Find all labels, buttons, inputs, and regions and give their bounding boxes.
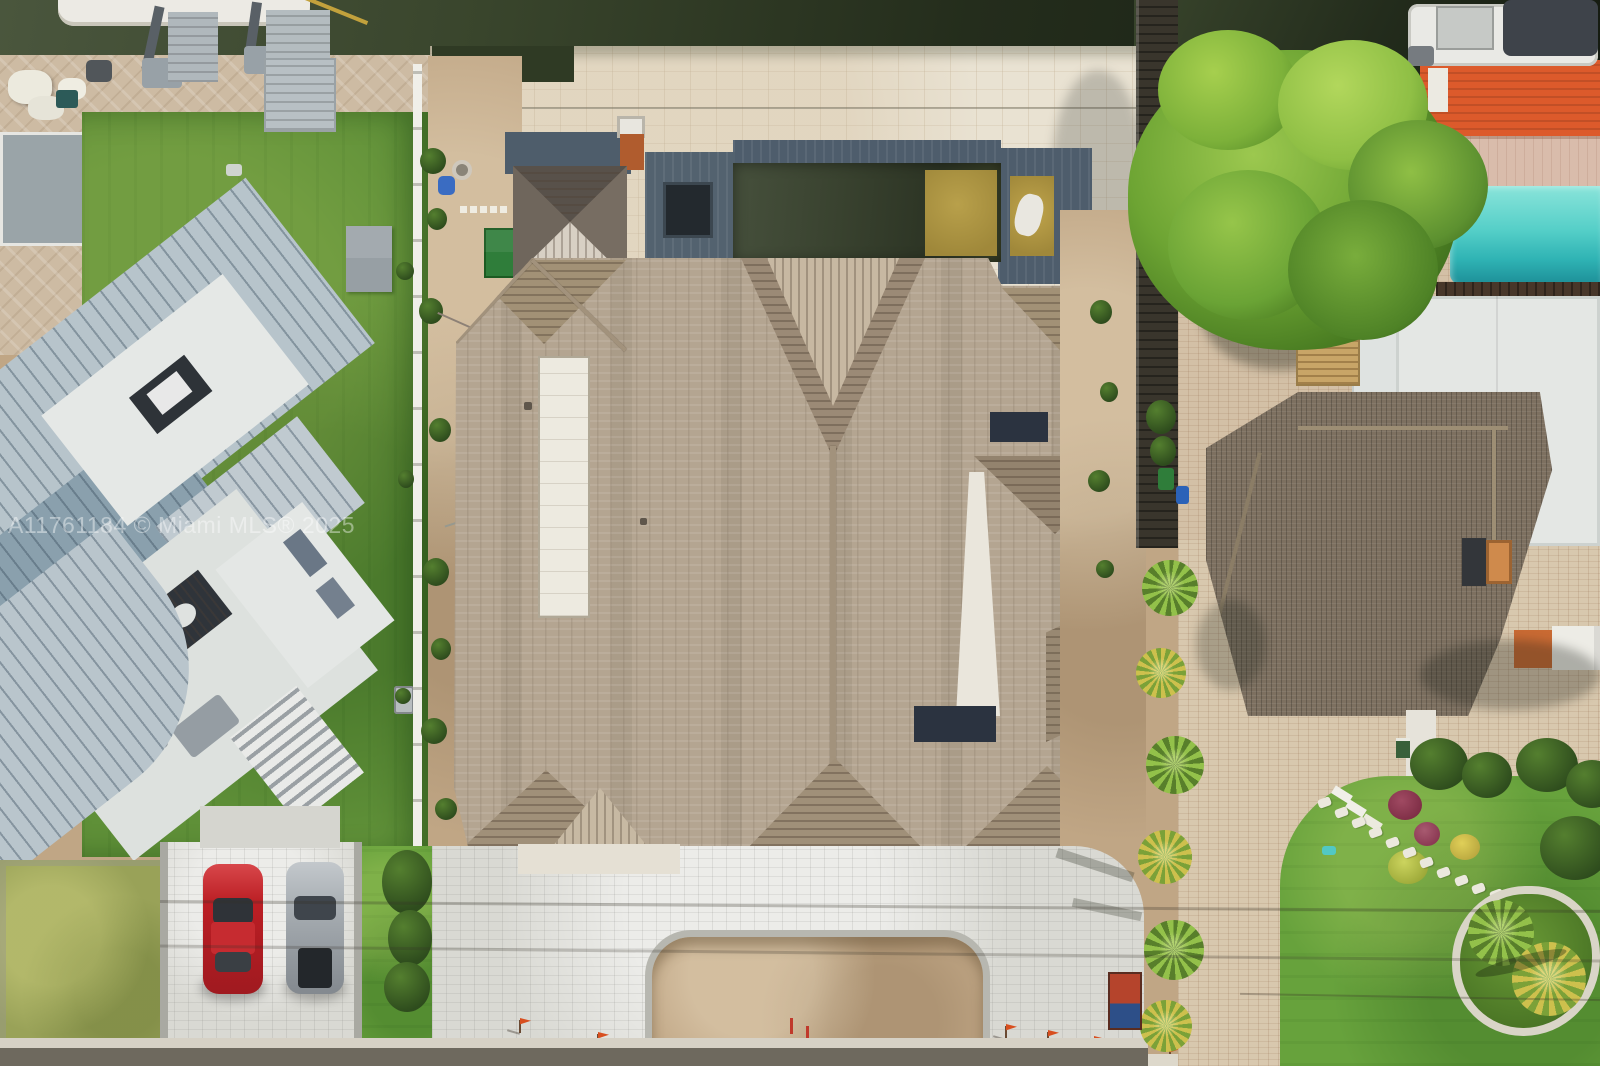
dock-platform-large xyxy=(264,58,336,132)
street xyxy=(0,1048,1148,1066)
survey-stake xyxy=(790,1018,793,1034)
hedge xyxy=(1100,382,1118,402)
roof-vent xyxy=(524,402,532,410)
shipping-container xyxy=(1108,972,1142,1030)
left-front-lawn xyxy=(0,860,170,1050)
hedge xyxy=(435,798,457,820)
hedge xyxy=(419,298,443,324)
sunroof xyxy=(298,948,332,988)
silver-car xyxy=(286,862,344,994)
watermark-text: A11761184 © Miami MLS® 2025 xyxy=(8,512,355,539)
pergola-table xyxy=(129,355,212,434)
palm-tree xyxy=(1138,830,1192,884)
chimney-orange xyxy=(1486,540,1512,584)
courtyard-glass xyxy=(914,706,996,742)
hedge xyxy=(1146,400,1176,434)
hedge xyxy=(396,262,414,280)
survey-flag xyxy=(512,1018,528,1035)
yard-sign xyxy=(1396,738,1410,758)
roof-ridge-center xyxy=(830,446,836,768)
hedge xyxy=(1090,300,1112,324)
hedge xyxy=(429,418,451,442)
palm-tree xyxy=(1146,736,1204,794)
window xyxy=(316,577,356,619)
main-roof xyxy=(454,252,1138,854)
construction-dumpster xyxy=(484,228,516,278)
courtyard-glass xyxy=(990,412,1048,442)
roof-vent xyxy=(640,518,647,525)
garden-shrub xyxy=(1462,752,1512,798)
car-roof xyxy=(211,922,255,954)
tree-canopy-lump xyxy=(1158,30,1298,150)
pool-shallow-shelf xyxy=(925,170,997,256)
magenta-shrub xyxy=(1414,822,1440,846)
left-front-walk xyxy=(200,806,340,848)
hedge xyxy=(398,470,414,488)
deck-expansion-joint xyxy=(430,107,1142,109)
equipment-panel xyxy=(346,226,392,292)
table-top xyxy=(146,371,192,415)
hedge-clump xyxy=(384,962,430,1012)
roof-white-chase xyxy=(956,472,1000,716)
hedge xyxy=(1150,436,1176,466)
palm-shadow xyxy=(1196,600,1266,690)
hedge xyxy=(1096,560,1114,578)
grill xyxy=(86,60,112,82)
garden-shrub-large xyxy=(1540,816,1600,880)
palm-tree xyxy=(1140,1000,1192,1052)
yellow-shrub xyxy=(1450,834,1480,860)
house-shadow xyxy=(1420,640,1600,710)
hedge xyxy=(423,558,449,586)
hedge xyxy=(427,208,447,230)
hedge xyxy=(431,638,451,660)
block-row xyxy=(460,206,508,213)
boat-canvas-cover xyxy=(1503,0,1598,56)
palm-tree xyxy=(1144,920,1204,980)
magenta-shrub xyxy=(1388,790,1422,820)
hedge xyxy=(395,688,411,704)
dock-platform xyxy=(266,10,330,62)
hedge xyxy=(420,148,446,174)
trash-bin-green xyxy=(1158,468,1174,490)
roof-ridge xyxy=(1298,426,1508,430)
hedge-clump xyxy=(388,910,432,966)
rust-chimney xyxy=(620,134,644,170)
blue-barrel xyxy=(438,176,455,195)
hedge xyxy=(421,718,447,744)
chimney-dark xyxy=(1462,538,1486,586)
palm-tree xyxy=(1142,560,1198,616)
big-tree xyxy=(1128,30,1478,350)
rear-window xyxy=(215,952,251,972)
red-car xyxy=(203,864,263,994)
windshield xyxy=(294,896,336,920)
aerial-photo: A11761184 © Miami MLS® 2025 xyxy=(0,0,1600,1066)
tree-canopy-lump xyxy=(1288,200,1438,340)
roof-ridge xyxy=(1492,430,1496,550)
fire-pit xyxy=(663,182,713,238)
hedge xyxy=(1088,470,1110,492)
palm-tree xyxy=(1136,648,1186,698)
pool-float xyxy=(1322,846,1336,855)
garden-shrub xyxy=(1410,738,1468,790)
trash-bin-blue xyxy=(1176,486,1189,504)
dock-platform xyxy=(168,12,218,82)
roof-hip-bottom-center xyxy=(742,758,928,854)
roof-skylight-strip xyxy=(538,356,590,618)
concrete-pipe xyxy=(452,160,472,180)
storage-bin xyxy=(56,90,78,108)
lawn-table xyxy=(226,164,242,176)
entry-walkway xyxy=(518,844,680,874)
boundary-fence-west xyxy=(413,64,422,858)
